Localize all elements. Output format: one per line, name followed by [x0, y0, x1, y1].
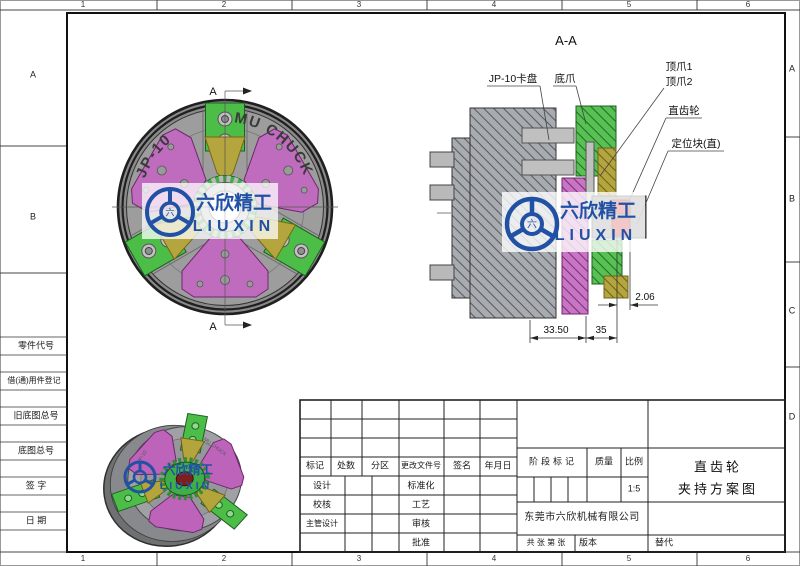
grid-col-top-5: 5: [627, 1, 631, 9]
left-label-master-no: 底图总号: [18, 447, 54, 456]
grid-row-right-a: A: [789, 65, 795, 74]
left-label-signature: 签 字: [26, 482, 47, 491]
tb-standardize: 标准化: [407, 482, 434, 491]
grid-col-bottom-2: 2: [222, 555, 226, 563]
grid-col-top-2: 2: [222, 1, 226, 9]
drawing-title-line2: 夹持方案图: [678, 483, 758, 496]
tb-stage-mark: 阶段标记: [529, 458, 577, 467]
tb-process: 工艺: [412, 501, 430, 510]
tb-design: 设计: [313, 482, 331, 491]
tb-count: 处数: [337, 462, 355, 471]
tb-sign: 签名: [453, 462, 471, 471]
tb-mass: 质量: [595, 458, 613, 467]
section-marker-top: A: [209, 86, 217, 98]
callout-top-jaw1: 顶爪1: [666, 61, 693, 73]
left-label-part-code: 零件代号: [18, 342, 54, 351]
tb-version: 版本: [579, 539, 597, 548]
tb-replace: 替代: [655, 539, 673, 548]
grid-row-right-c: C: [789, 307, 796, 316]
grid-col-bottom-4: 4: [492, 555, 496, 563]
callout-bottom-jaw: 底爪: [555, 72, 576, 85]
tb-chief-design: 主管设计: [306, 520, 338, 528]
callout-locating-block: 定位块(直): [672, 137, 721, 150]
section-arrow-top: [243, 88, 252, 95]
left-panel-grid: [0, 337, 67, 530]
grid-col-top-4: 4: [492, 1, 496, 9]
left-label-date: 日 期: [26, 517, 47, 526]
tb-approve: 批准: [412, 539, 430, 548]
left-label-old-master-no: 旧底图总号: [13, 412, 58, 421]
watermark-en: LIUXIN: [193, 218, 275, 235]
drawing-title-line1: 直齿轮: [694, 461, 742, 474]
logo-hub-char: 六: [165, 207, 174, 218]
dim-2-06: 2.06: [635, 292, 655, 303]
tb-change-doc-no: 更改文件号: [401, 462, 441, 470]
watermark-front: 六 六欣精工 LIUXIN: [142, 183, 278, 239]
tb-check: 校核: [313, 501, 331, 510]
section-view: 33.50 35 2.06 A-A JP-10卡盘 底爪 顶爪1 顶爪2 直齿轮…: [430, 33, 724, 343]
callout-top-jaw2: 顶爪2: [666, 76, 693, 88]
logo-hub-char: 六: [527, 219, 537, 231]
grid-col-bottom-1: 1: [81, 555, 85, 563]
grid-col-top-6: 6: [746, 1, 750, 9]
tb-scale: 比例: [625, 458, 643, 467]
section-title: A-A: [555, 33, 577, 48]
grid-col-top-3: 3: [357, 1, 361, 9]
grid-row-right-d: D: [789, 413, 796, 422]
grid-row-left-a: A: [30, 71, 36, 80]
watermark-section: 六 六欣精工 LIUXIN: [502, 192, 645, 252]
watermark-en: LIUXIN: [555, 227, 637, 244]
tb-mark: 标记: [306, 462, 324, 471]
watermark-cn: 六欣精工: [560, 199, 636, 222]
grid-col-bottom-6: 6: [746, 555, 750, 563]
dim-33-50: 33.50: [543, 325, 568, 336]
grid-col-bottom-3: 3: [357, 555, 361, 563]
title-block-grid: [300, 400, 785, 552]
grid-col-top-1: 1: [81, 1, 85, 9]
callout-spur-gear: 直齿轮: [668, 104, 700, 117]
grid-row-left-b: B: [30, 213, 36, 222]
watermark-cn: 六欣精工: [163, 462, 214, 477]
tb-sheets: 共 张 第 张: [527, 539, 566, 547]
watermark-en: LIUXIN: [160, 480, 212, 492]
tb-date: 年月日: [484, 462, 511, 471]
section-arrow-bottom: [243, 322, 252, 329]
drawing-sheet: JP-10 MU CHUCK A A: [0, 0, 800, 566]
dim-35: 35: [595, 325, 607, 336]
grid-col-bottom-5: 5: [627, 555, 631, 563]
tb-zone: 分区: [371, 462, 389, 471]
section-marker-bottom: A: [209, 321, 217, 333]
tb-audit: 审核: [412, 520, 430, 529]
tb-company: 东莞市六欣机械有限公司: [524, 513, 640, 523]
watermark-cn: 六欣精工: [196, 191, 272, 214]
callout-chuck: JP-10卡盘: [489, 72, 538, 85]
left-label-borrow-register: 借(通)用件登记: [7, 377, 60, 385]
grid-row-right-b: B: [789, 195, 795, 204]
tb-scale-value: 1:5: [628, 485, 641, 494]
